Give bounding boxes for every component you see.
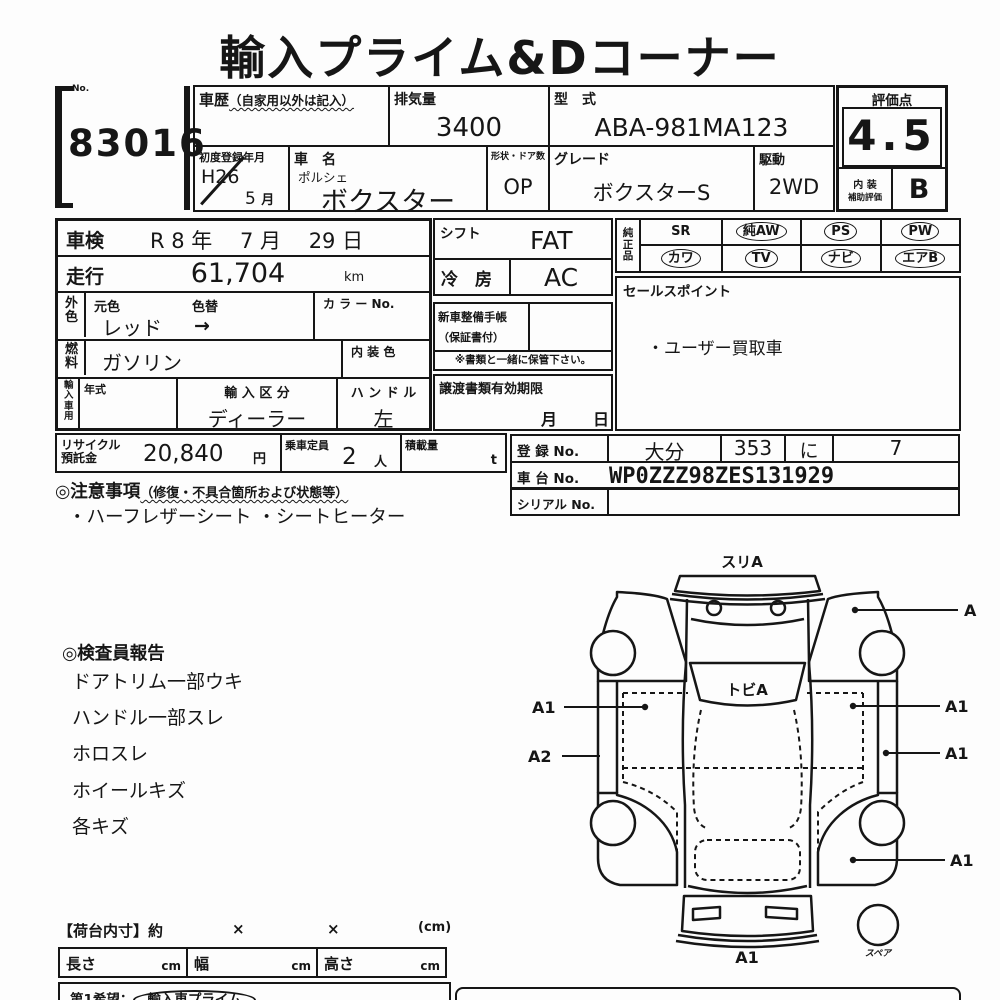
drive-value: 2WD — [755, 175, 833, 199]
cargo-width-unit: cm — [291, 959, 311, 973]
import-class-label: 輸 入 区 分 — [178, 382, 336, 401]
cargo-length-unit: cm — [161, 959, 181, 973]
car-name-label: 車 名 — [294, 149, 336, 169]
transfer-label: 譲渡書類有効期限 — [439, 378, 543, 397]
book-label-cell: 新車整備手帳 （保証書付） — [435, 304, 530, 350]
front-bumper — [675, 576, 820, 596]
color-change-arrow: → — [194, 315, 210, 337]
mark-right-door: A1 — [945, 697, 969, 716]
reg-number: 7 — [832, 436, 958, 461]
left-front-wheel — [591, 631, 635, 675]
genuine-item-kawa: カワ — [641, 246, 721, 272]
color-change-label: 色替 — [192, 296, 218, 315]
genuine-item-pw: PW — [880, 220, 960, 246]
book-label-2: （保証書付） — [438, 329, 528, 345]
serial-row: シリアル No. — [510, 487, 960, 516]
mark-right-rear: A1 — [950, 851, 974, 870]
rear-bumper — [682, 896, 813, 936]
genuine-label: 純正品 — [623, 228, 634, 263]
footer-right-box — [455, 987, 961, 1000]
cargo-times1: × — [232, 920, 245, 938]
interior-rating-row: 内 装 補助評価 B — [839, 167, 945, 209]
auction-sheet: 輸入プライム&Dコーナー No. 83016 車歴（自家用以外は記入） 排気量 … — [0, 0, 1000, 1000]
interior-color-label: 内 装 色 — [351, 343, 395, 360]
displacement-value: 3400 — [390, 113, 548, 143]
car-name-value: ボクスター — [290, 180, 486, 219]
import-class-value: ディーラー — [178, 403, 336, 432]
cautions-note: （修復・不具合箇所および状態等） — [140, 486, 348, 501]
mark-rear-bumper: A1 — [735, 948, 759, 967]
chassis-label: 車 台 No. — [517, 467, 579, 487]
history-note: （自家用以外は記入） — [229, 93, 354, 108]
windshield-damage-label: トビA — [726, 681, 768, 699]
spare-label: スペア — [865, 949, 893, 959]
car-name-cell: 車 名 ポルシェ ボクスター — [288, 145, 488, 212]
grade-label: グレード — [554, 149, 610, 169]
ext-color-row: 外色 元色 色替 レッド → カ ラ ー No. — [58, 293, 429, 341]
shift-box: シフト FAT — [433, 218, 613, 260]
shape-label: 形状・ドア数 — [488, 149, 548, 162]
drive-label: 駆動 — [759, 149, 785, 168]
genuine-item-navi: ナビ — [800, 246, 880, 272]
chassis-value: WP0ZZZ98ZES131929 — [609, 464, 834, 489]
fuel-row: 燃料 ガソリン 内 装 色 — [58, 341, 429, 379]
genuine-grid: SR 純AW PS PW カワ TV ナビ エアB — [641, 220, 959, 271]
rating-box: 評価点 4.5 内 装 補助評価 B — [836, 85, 948, 212]
capacity-value: 2 — [342, 444, 357, 470]
header-table: 車歴（自家用以外は記入） 排気量 3400 型 式 ABA-981MA123 初… — [193, 85, 835, 212]
reg-no-label: 登 録 No. — [517, 440, 579, 460]
capacity-unit: 人 — [374, 451, 387, 470]
mileage-value: 61,704 — [148, 258, 328, 289]
car-damage-diagram: スリA トビA A A1 A1 A2 A1 A1 A1 スペア — [520, 550, 1000, 975]
import-row: 輸入車用 年式 輸 入 区 分 ディーラー ハ ン ド ル 左 — [58, 379, 429, 428]
shaken-value: R 8 年 7 月 29 日 — [150, 225, 363, 255]
first-reg-cell: 初度登録年月 H26 5 月 — [193, 145, 290, 212]
inspector-report-list: ドアトリム一部ウキ ハンドル一部スレ ホロスレ ホイールキズ 各キズ — [72, 664, 243, 845]
genuine-label-cell: 純正品 — [617, 220, 641, 271]
shift-label: シフト — [440, 222, 481, 242]
shaken-label: 車検 — [66, 226, 104, 253]
mileage-row: 走行 61,704 km — [58, 257, 429, 293]
transfer-day: 日 — [593, 406, 609, 430]
cooling-value: AC — [511, 263, 611, 292]
score-label: 評価点 — [839, 89, 945, 109]
history-label: 車歴 — [199, 91, 229, 109]
registration-table: 登 録 No. 大分 353 に 7 車 台 No. WP0ZZZ98ZES13… — [510, 434, 960, 516]
model-label: 型 式 — [554, 89, 596, 109]
transfer-box: 譲渡書類有効期限 月 日 — [433, 374, 613, 431]
handle-value: 左 — [338, 403, 429, 432]
right-rear-wheel — [860, 801, 904, 845]
genuine-item-ps: PS — [800, 220, 880, 246]
cargo-width-cell: 幅 cm — [186, 947, 318, 978]
wish-value: 輸入車プライム — [133, 990, 255, 1000]
sales-point-box: セールスポイント ・ユーザー買取車 — [615, 276, 961, 431]
import-label: 輸入車用 — [58, 379, 80, 428]
rear-window-dashed — [695, 840, 800, 880]
color-no-cell: カ ラ ー No. — [313, 293, 429, 339]
model-value: ABA-981MA123 — [550, 113, 833, 142]
cargo-heading: 【荷台内寸】約 — [58, 920, 163, 941]
left-rear-wheel — [591, 801, 635, 845]
grade-cell: グレード ボクスターS — [548, 145, 755, 212]
cargo-length-label: 長さ — [66, 953, 96, 974]
cargo-length-cell: 長さ cm — [58, 947, 188, 978]
mileage-unit: km — [344, 270, 364, 285]
book-label-1: 新車整備手帳 — [438, 309, 528, 325]
divider-bar — [184, 86, 190, 210]
inspector-item: ドアトリム一部ウキ — [72, 664, 243, 700]
sheet-title: 輸入プライム&Dコーナー — [0, 22, 1000, 88]
shift-value: FAT — [530, 226, 573, 255]
handle-label: ハ ン ド ル — [338, 382, 429, 401]
lot-no-label: No. — [72, 84, 89, 94]
fuel-value: ガソリン — [102, 347, 182, 376]
recycle-cell: リサイクル預託金 20,840 円 — [57, 435, 282, 471]
first-reg-label: 初度登録年月 — [199, 149, 265, 165]
load-cell: 積載量 t — [402, 435, 505, 471]
shaken-row: 車検 R 8 年 7 月 29 日 — [58, 221, 429, 257]
handle-cell: ハ ン ド ル 左 — [338, 379, 429, 428]
color-no-label: カ ラ ー No. — [323, 295, 394, 312]
cautions-heading: ◎注意事項（修復・不具合箇所および状態等） — [55, 478, 348, 503]
detail-left-table: 車検 R 8 年 7 月 29 日 走行 61,704 km 外色 元色 色替 … — [55, 218, 432, 431]
genuine-item-airbag: エアB — [880, 246, 960, 272]
first-reg-month: 5 月 — [245, 189, 274, 209]
load-label: 積載量 — [405, 437, 438, 453]
transfer-month: 月 — [541, 406, 557, 430]
cargo-width-label: 幅 — [194, 953, 209, 974]
recycle-row: リサイクル預託金 20,840 円 乗車定員 2 人 積載量 t — [55, 433, 507, 473]
mark-right-rocker: A1 — [945, 744, 969, 763]
interior-color-cell: 内 装 色 — [341, 341, 429, 377]
cargo-height-label: 高さ — [324, 953, 354, 974]
model-cell: 型 式 ABA-981MA123 — [548, 85, 835, 147]
shape-value: OP — [488, 175, 548, 199]
year-cell: 年式 — [80, 379, 178, 428]
spare-tire — [858, 905, 898, 945]
front-damage-label: スリA — [721, 553, 763, 571]
serial-divider — [607, 489, 609, 514]
reg-area: 大分 — [607, 436, 720, 461]
score-value: 4.5 — [842, 107, 942, 167]
sales-point-label: セールスポイント — [623, 280, 731, 300]
reg-kana: に — [784, 436, 832, 461]
year-label: 年式 — [84, 381, 106, 397]
mark-left-rocker: A2 — [528, 747, 552, 766]
genuine-item-tv: TV — [721, 246, 801, 272]
cargo-unit: (cm) — [418, 920, 451, 935]
maintenance-book-box: 新車整備手帳 （保証書付） — [433, 302, 613, 352]
reg-class: 353 — [720, 436, 784, 461]
recycle-unit: 円 — [253, 448, 266, 467]
reg-no-row: 登 録 No. 大分 353 に 7 — [510, 434, 960, 463]
orig-color-value: レッド — [102, 312, 162, 341]
inspector-item: ハンドル一部スレ — [72, 700, 243, 736]
recycle-value: 20,840 — [143, 441, 223, 467]
cautions-text: ・ハーフレザーシート ・シートヒーター — [68, 503, 405, 529]
inspector-item: 各キズ — [72, 809, 243, 845]
inspector-item: ホロスレ — [72, 736, 243, 772]
ext-color-label: 外色 — [58, 293, 86, 337]
genuine-item-sr: SR — [641, 220, 721, 246]
genuine-parts-box: 純正品 SR 純AW PS PW カワ TV ナビ エアB — [615, 218, 961, 273]
mark-left-door: A1 — [532, 698, 556, 717]
right-front-wheel — [860, 631, 904, 675]
shape-cell: 形状・ドア数 OP — [486, 145, 550, 212]
displacement-label: 排気量 — [394, 89, 436, 109]
cooling-box: 冷 房 AC — [433, 258, 613, 296]
serial-label: シリアル No. — [517, 494, 595, 513]
wish-label: 第1希望： — [70, 992, 133, 1000]
fuel-label: 燃料 — [58, 341, 86, 375]
chassis-row: 車 台 No. WP0ZZZ98ZES131929 — [510, 461, 960, 490]
history-cell: 車歴（自家用以外は記入） — [193, 85, 390, 147]
displacement-cell: 排気量 3400 — [388, 85, 550, 147]
interior-grade: B — [893, 169, 945, 209]
capacity-cell: 乗車定員 2 人 — [282, 435, 402, 471]
cooling-label: 冷 房 — [435, 260, 511, 294]
sales-point-text: ・ユーザー買取車 — [647, 334, 783, 359]
cargo-height-cell: 高さ cm — [316, 947, 447, 978]
cargo-height-unit: cm — [420, 959, 440, 973]
inspector-item: ホイールキズ — [72, 773, 243, 809]
capacity-label: 乗車定員 — [285, 437, 329, 453]
inspector-heading: ◎検査員報告 — [62, 640, 165, 665]
import-class-cell: 輸 入 区 分 ディーラー — [178, 379, 338, 428]
genuine-item-aw: 純AW — [721, 220, 801, 246]
drive-cell: 駆動 2WD — [753, 145, 835, 212]
mileage-label: 走行 — [66, 262, 104, 289]
footer-wish-box: 第1希望：輸入車プライム — [58, 982, 451, 1000]
keep-note-box: ※書類と一緒に保管下さい。 — [433, 350, 613, 371]
load-unit: t — [491, 453, 497, 468]
mark-right-fender: A — [964, 601, 977, 620]
cautions-title: ◎注意事項 — [55, 482, 140, 502]
cargo-times2: × — [327, 920, 340, 938]
interior-label: 内 装 補助評価 — [839, 169, 893, 209]
grade-value: ボクスターS — [550, 177, 753, 207]
